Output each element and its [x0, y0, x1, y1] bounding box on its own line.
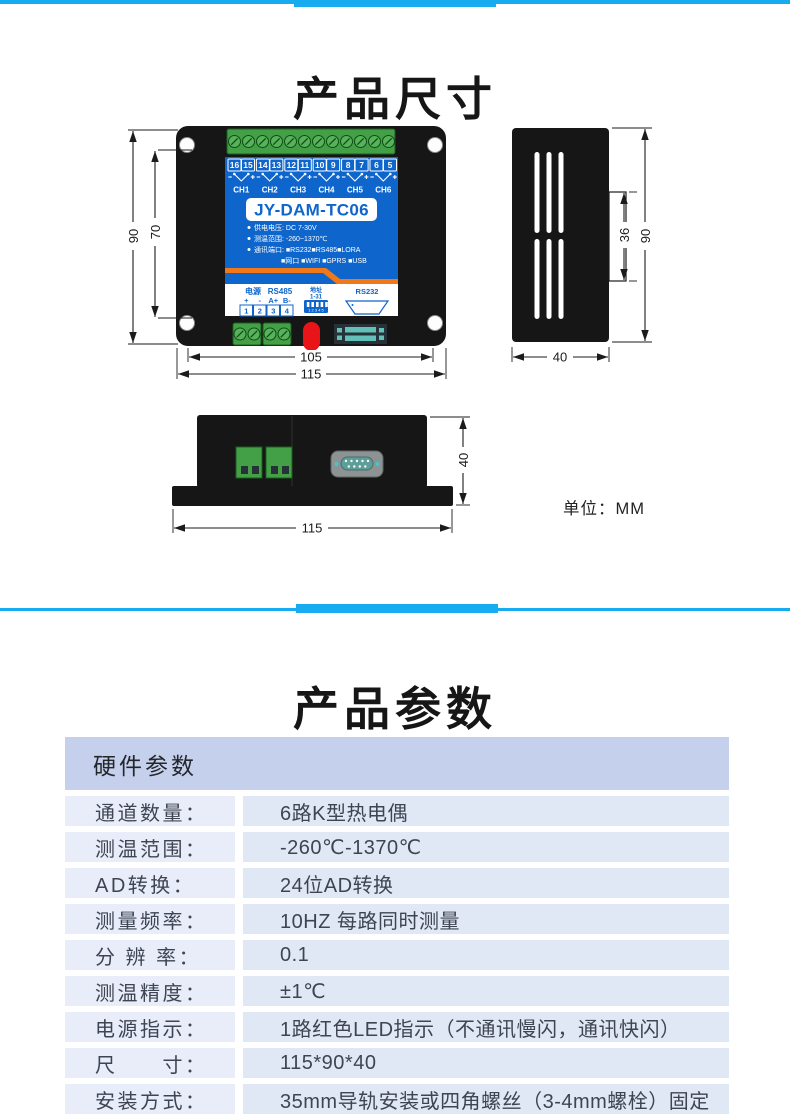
- row-label: 电源指示：: [65, 1012, 235, 1042]
- row-label: 分 辨 率：: [65, 940, 235, 970]
- dim-bottom-width: 115: [302, 521, 323, 536]
- pin-number: 2: [258, 307, 262, 316]
- table-row: AD转换： 24位AD转换: [65, 868, 729, 898]
- row-label: 测量频率：: [65, 904, 235, 934]
- table-row: 分 辨 率： 0.1: [65, 940, 729, 970]
- row-label: 尺 寸：: [65, 1048, 235, 1078]
- dim-side-depth: 40: [553, 350, 567, 365]
- front-view: 16 15 14 13 12 11 10 9 8 7 6 5 CH1 CH2 C…: [126, 126, 446, 382]
- channel-label: CH2: [262, 186, 279, 195]
- terminal-number: 10: [315, 160, 325, 170]
- model-name: JY-DAM-TC06: [254, 201, 369, 220]
- channel-label: CH3: [290, 186, 307, 195]
- params-table: 硬件参数 通道数量： 6路K型热电偶 测温范围： -260℃-1370℃ AD转…: [65, 737, 729, 1114]
- dim-side-height: 90: [638, 229, 653, 243]
- row-value: 24位AD转换: [243, 868, 729, 898]
- table-row: 测温范围： -260℃-1370℃: [65, 832, 729, 862]
- terminal-number: 7: [359, 160, 364, 170]
- terminal-number: 9: [331, 160, 336, 170]
- table-row: 测温精度： ±1℃: [65, 976, 729, 1006]
- spec-line: ■网口 ■WIFI ■GPRS ■USB: [281, 257, 367, 265]
- pin-label: A+: [268, 296, 278, 305]
- power-label: 电源: [245, 286, 261, 296]
- channel-label: CH6: [375, 186, 392, 195]
- table-header: 硬件参数: [65, 737, 729, 790]
- dim-bottom-depth: 40: [456, 453, 471, 467]
- table-row: 尺 寸： 115*90*40: [65, 1048, 729, 1078]
- terminal-number: 6: [374, 160, 379, 170]
- row-label: AD转换：: [65, 868, 235, 898]
- section-title-parameters: 产品参数: [0, 673, 790, 739]
- row-value: 0.1: [243, 940, 729, 970]
- table-row: 安装方式： 35mm导轨安装或四角螺丝（3-4mm螺栓）固定: [65, 1084, 729, 1114]
- pin-number: 3: [271, 307, 275, 316]
- table-row: 电源指示： 1路红色LED指示（不通讯慢闪，通讯快闪）: [65, 1012, 729, 1042]
- table-row: 测量频率： 10HZ 每路同时测量: [65, 904, 729, 934]
- dim-front-inner-height: 70: [148, 225, 163, 239]
- terminal-number: 13: [272, 160, 282, 170]
- top-divider-segment: [294, 0, 496, 7]
- model-badge: JY-DAM-TC06: [246, 198, 377, 221]
- terminal-number: 5: [388, 160, 393, 170]
- row-label: 通道数量：: [65, 796, 235, 826]
- dim-side-tab: 36: [617, 228, 632, 242]
- row-value: ±1℃: [243, 976, 729, 1006]
- bottom-flange: [172, 486, 453, 506]
- row-label: 安装方式：: [65, 1084, 235, 1114]
- power-led: [303, 322, 320, 351]
- dip-numbers: 1 2 3 4 5: [308, 308, 324, 313]
- row-value: -260℃-1370℃: [243, 832, 729, 862]
- rs485-label: RS485: [268, 287, 293, 296]
- channel-label: CH1: [233, 186, 250, 195]
- front-top-terminal-strip: [227, 129, 395, 154]
- dim-front-inner-width: 105: [300, 350, 322, 365]
- spec-line: 通讯端口: ■RS232■RS485■LORA: [254, 245, 361, 254]
- side-view: 36 90 40: [512, 128, 653, 365]
- table-row: 通道数量： 6路K型热电偶: [65, 796, 729, 826]
- terminal-number: 8: [346, 160, 351, 170]
- dimension-drawings: 16 15 14 13 12 11 10 9 8 7 6 5 CH1 CH2 C…: [0, 100, 790, 560]
- dim-front-outer-height: 90: [126, 229, 141, 243]
- terminal-number: 16: [230, 160, 240, 170]
- addr-range: 1-31: [310, 295, 323, 301]
- spec-line: 供电电压: DC 7-30V: [254, 223, 317, 232]
- row-label: 测温精度：: [65, 976, 235, 1006]
- spec-line: 测温范围: -260~1370℃: [254, 234, 328, 243]
- terminal-number: 11: [300, 160, 309, 170]
- row-value: 10HZ 每路同时测量: [243, 904, 729, 934]
- channel-label: CH4: [318, 186, 335, 195]
- terminal-number: 15: [243, 160, 253, 170]
- channel-label: CH5: [347, 186, 364, 195]
- row-value: 1路红色LED指示（不通讯慢闪，通讯快闪）: [243, 1012, 729, 1042]
- front-db9-side: [334, 324, 387, 344]
- db9-connector: [331, 451, 383, 477]
- row-label: 测温范围：: [65, 832, 235, 862]
- bottom-view: 40 115: [172, 415, 471, 536]
- rs232-label: RS232: [356, 287, 379, 296]
- terminal-number: 12: [287, 160, 297, 170]
- addr-label: 地址: [310, 286, 322, 294]
- terminal-number: 14: [258, 160, 268, 170]
- row-value: 115*90*40: [243, 1048, 729, 1078]
- dim-front-outer-width: 115: [301, 367, 322, 382]
- pin-label: +: [244, 296, 249, 305]
- row-value: 35mm导轨安装或四角螺丝（3-4mm螺栓）固定: [243, 1084, 729, 1114]
- bottom-body: [197, 415, 427, 488]
- pin-number: 1: [244, 307, 248, 316]
- row-value: 6路K型热电偶: [243, 796, 729, 826]
- pin-label: B-: [283, 296, 291, 305]
- unit-note: 单位：MM: [563, 499, 645, 518]
- mid-divider-segment: [296, 604, 498, 613]
